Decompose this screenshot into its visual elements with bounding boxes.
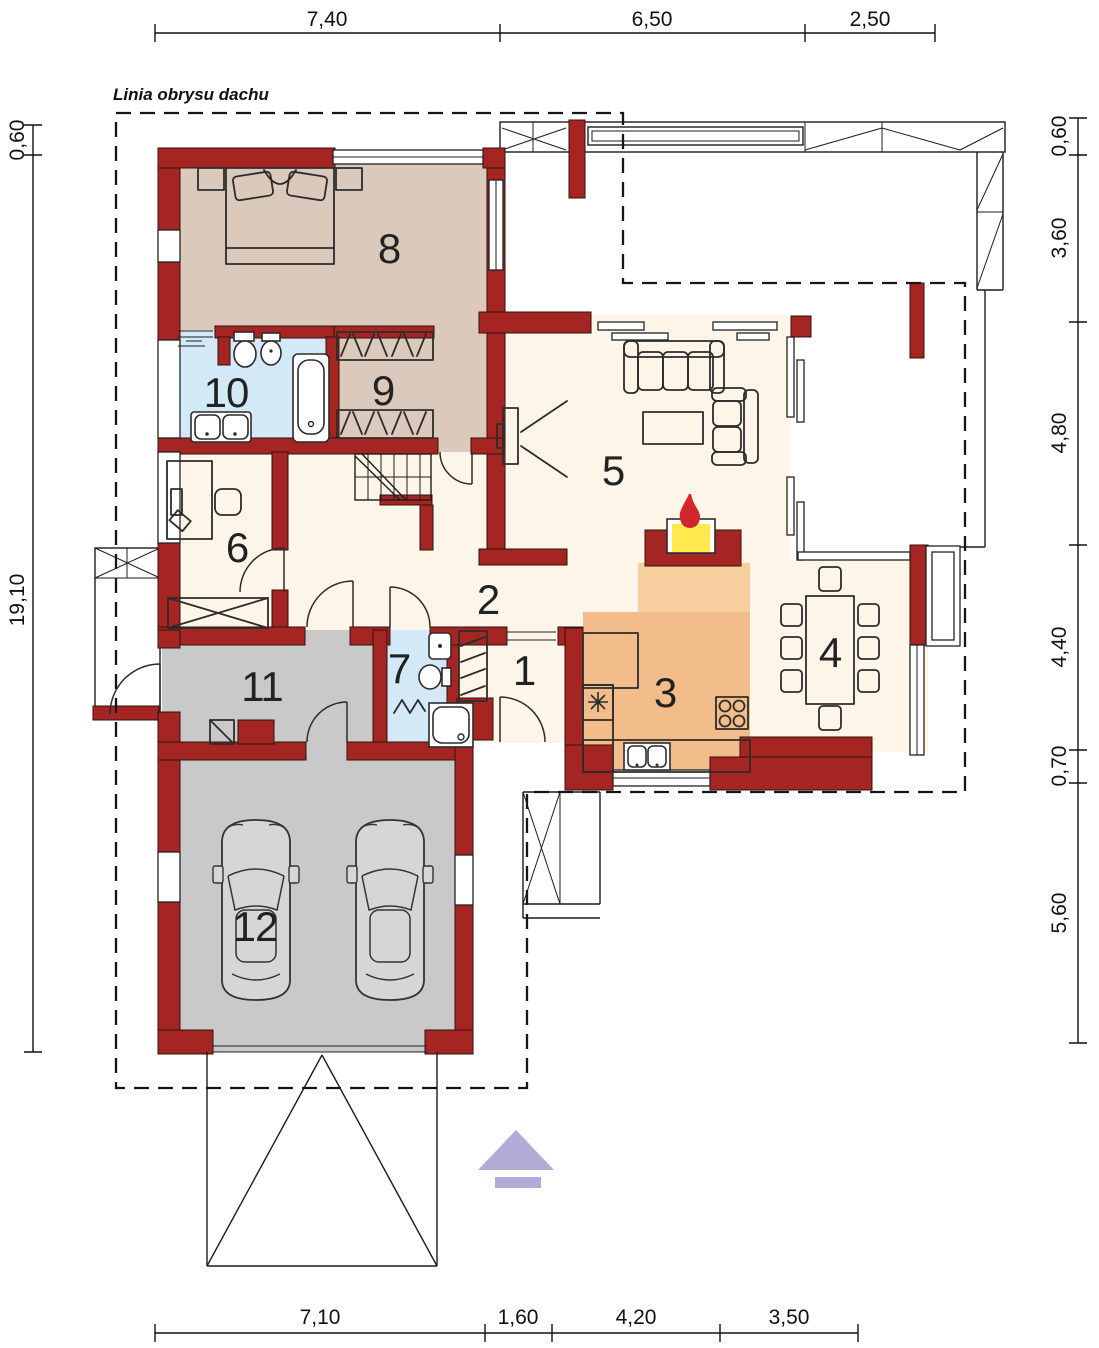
dimension-bottom: 7,10 1,60 4,20 3,50: [155, 1306, 858, 1342]
room-label-8: 8: [378, 225, 400, 272]
dim-bottom-2: 1,60: [498, 1306, 539, 1329]
dim-right-5: 0,70: [1048, 746, 1071, 787]
dim-top-3: 2,50: [850, 8, 891, 31]
dim-right-3: 4,80: [1048, 413, 1071, 454]
floor-hearth: [638, 563, 750, 612]
dimension-top: 7,40 6,50 2,50: [155, 8, 935, 42]
boiler: [238, 720, 274, 744]
room-label-9: 9: [372, 367, 394, 414]
room-label-3: 3: [654, 669, 676, 716]
room-label-5: 5: [602, 447, 624, 494]
room-label-6: 6: [226, 524, 248, 571]
dim-left-1: 0,60: [6, 120, 29, 161]
floor-plan-page: Linia obrysu dachu 1 2 3 4 5 6 7 8 9 10 …: [0, 0, 1099, 1348]
roof-outline-label: Linia obrysu dachu: [113, 85, 269, 104]
room-label-1: 1: [513, 647, 535, 694]
room-label-10: 10: [204, 369, 249, 416]
dimension-left: 0,60 19,10: [6, 120, 42, 1052]
car-right: [347, 820, 433, 1000]
dim-top-2: 6,50: [632, 8, 673, 31]
room-label-7: 7: [388, 645, 410, 692]
dim-right-1: 0,60: [1048, 116, 1071, 157]
dim-bottom-3: 4,20: [616, 1306, 657, 1329]
dim-bottom-4: 3,50: [769, 1306, 810, 1329]
dim-right-4: 4,40: [1048, 627, 1071, 668]
room-label-4: 4: [819, 629, 842, 676]
room-label-2: 2: [477, 576, 499, 623]
driveway: [207, 1052, 437, 1266]
floor-garage-12: [162, 757, 473, 1052]
floor-plan-drawing: Linia obrysu dachu 1 2 3 4 5 6 7 8 9 10 …: [0, 0, 1099, 1348]
dim-right-6: 5,60: [1048, 893, 1071, 934]
side-porch-frame: [93, 548, 160, 720]
dim-top-1: 7,40: [307, 8, 348, 31]
dim-bottom-1: 7,10: [300, 1306, 341, 1329]
room-label-12: 12: [233, 903, 278, 950]
room-label-11: 11: [241, 663, 283, 710]
entry-porch-frame: [523, 792, 600, 918]
north-arrow-icon: [478, 1130, 554, 1188]
dim-left-2: 19,10: [6, 574, 29, 627]
dim-right-2: 3,60: [1048, 218, 1071, 259]
dimension-right: 0,60 3,60 4,80 4,40 0,70 5,60: [1048, 116, 1087, 1043]
snowflake-icon: [588, 692, 608, 712]
